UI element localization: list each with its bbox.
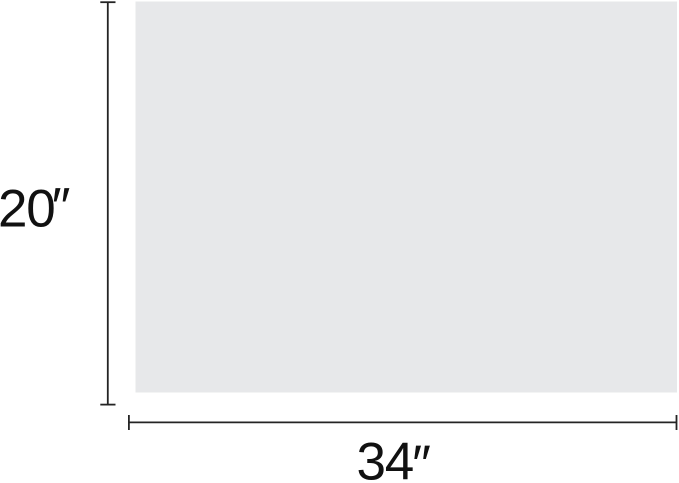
svg-text:34″: 34″: [357, 433, 431, 483]
svg-text:20″: 20″: [0, 178, 70, 239]
